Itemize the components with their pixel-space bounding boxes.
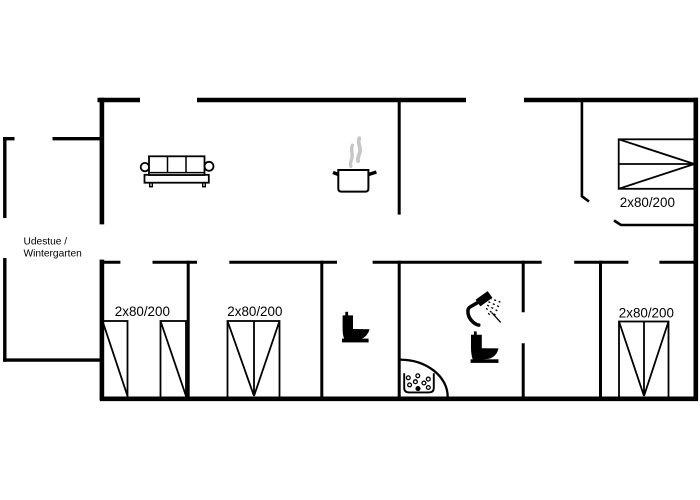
- svg-text:Wintergarten: Wintergarten: [24, 248, 82, 259]
- svg-text:2x80/200: 2x80/200: [620, 195, 675, 210]
- svg-text:2x80/200: 2x80/200: [619, 306, 674, 321]
- svg-text:2x80/200: 2x80/200: [115, 304, 170, 319]
- svg-text:Udestue /: Udestue /: [24, 236, 68, 247]
- svg-text:2x80/200: 2x80/200: [227, 304, 282, 319]
